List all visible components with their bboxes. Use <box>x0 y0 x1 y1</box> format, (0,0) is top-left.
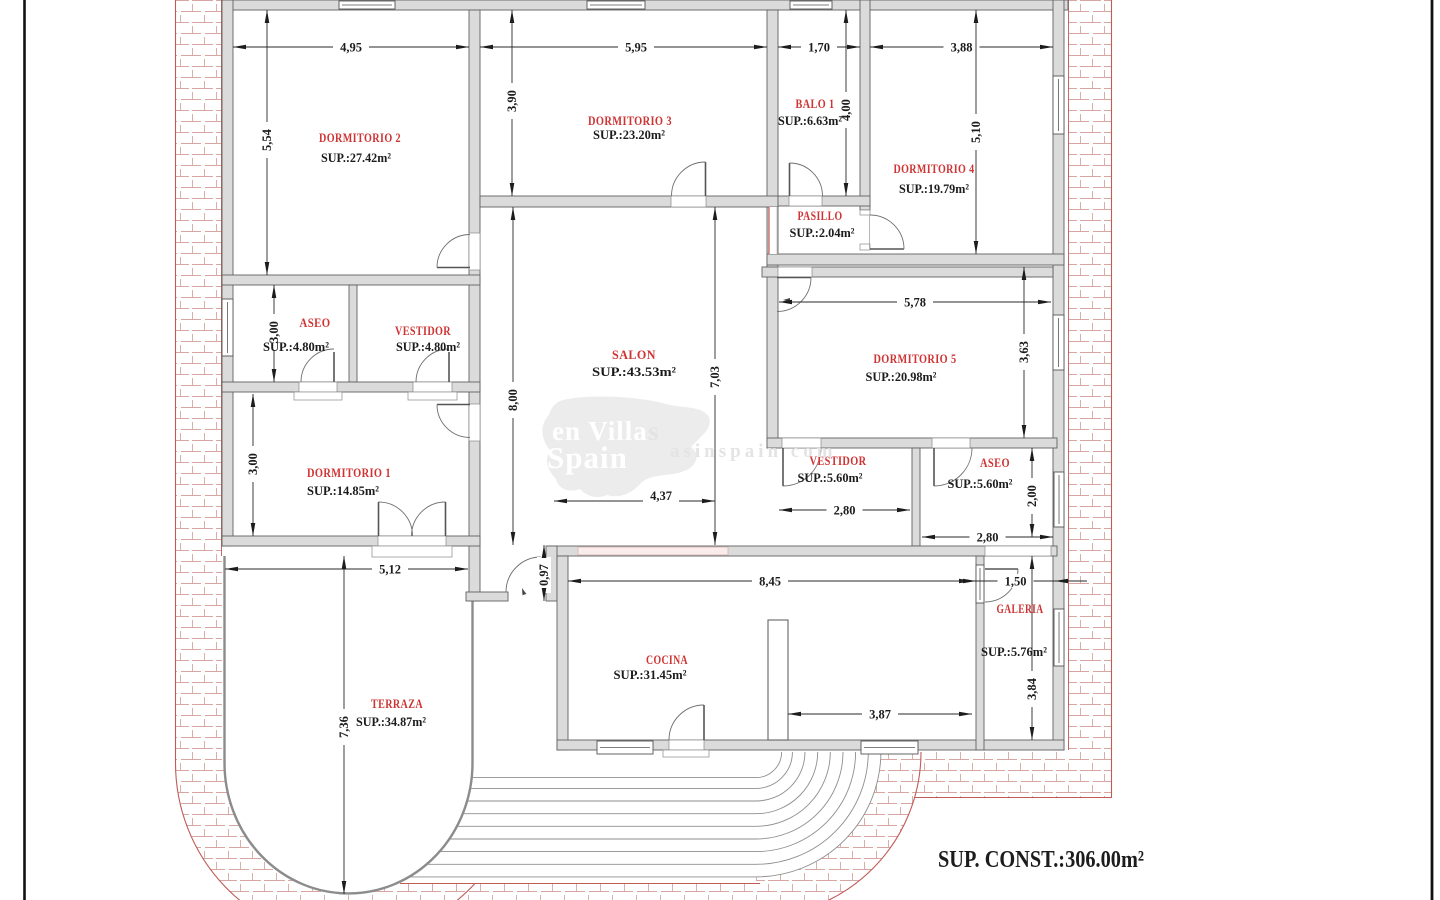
svg-text:SUP.:14.85m²: SUP.:14.85m² <box>307 483 379 498</box>
svg-text:7,03: 7,03 <box>708 366 722 388</box>
svg-text:3,87: 3,87 <box>869 708 891 722</box>
svg-text:COCINA: COCINA <box>646 652 688 667</box>
svg-text:s: s <box>648 416 659 446</box>
svg-text:SUP.:6.63m²: SUP.:6.63m² <box>778 113 842 128</box>
svg-text:3,88: 3,88 <box>951 41 973 55</box>
svg-text:5,78: 5,78 <box>904 296 926 310</box>
svg-text:DORMITORIO 4: DORMITORIO 4 <box>894 161 975 176</box>
svg-text:BALO 1: BALO 1 <box>796 96 835 111</box>
svg-text:5,54: 5,54 <box>260 128 274 151</box>
svg-text:7,36: 7,36 <box>337 716 351 738</box>
svg-text:3,90: 3,90 <box>505 90 519 112</box>
svg-text:SUP.:23.20m²: SUP.:23.20m² <box>593 127 665 142</box>
svg-text:5,12: 5,12 <box>379 563 401 577</box>
svg-text:SUP.:31.45m²: SUP.:31.45m² <box>614 667 687 682</box>
svg-text:8,00: 8,00 <box>506 389 520 411</box>
svg-text:2,80: 2,80 <box>977 531 999 545</box>
svg-text:SUP. CONST.:306.00m²: SUP. CONST.:306.00m² <box>938 847 1144 873</box>
svg-text:3,84: 3,84 <box>1025 677 1039 700</box>
svg-text:ASEO: ASEO <box>300 315 331 330</box>
svg-text:ASEO: ASEO <box>980 455 1010 470</box>
svg-text:DORMITORIO 1: DORMITORIO 1 <box>307 465 391 480</box>
svg-text:asinspain com: asinspain com <box>670 441 837 462</box>
svg-text:SUP.:27.42m²: SUP.:27.42m² <box>321 150 391 165</box>
svg-text:VESTIDOR: VESTIDOR <box>395 323 451 338</box>
svg-text:1,50: 1,50 <box>1005 575 1027 589</box>
svg-text:PASILLO: PASILLO <box>798 208 843 223</box>
svg-text:SUP.:20.98m²: SUP.:20.98m² <box>866 369 937 384</box>
svg-text:2,00: 2,00 <box>1025 485 1039 507</box>
svg-text:1,70: 1,70 <box>808 41 830 55</box>
svg-text:SUP.:43.53m²: SUP.:43.53m² <box>592 364 676 379</box>
svg-text:DORMITORIO 5: DORMITORIO 5 <box>874 351 957 366</box>
svg-text:Spain: Spain <box>547 440 628 475</box>
svg-text:8,45: 8,45 <box>759 575 781 589</box>
svg-text:SALON: SALON <box>612 347 656 362</box>
svg-text:SUP.:2.04m²: SUP.:2.04m² <box>790 225 855 240</box>
svg-text:SUP.:4.80m²: SUP.:4.80m² <box>396 339 460 354</box>
svg-text:3,63: 3,63 <box>1017 341 1031 363</box>
svg-text:SUP.:5.60m²: SUP.:5.60m² <box>948 476 1013 491</box>
svg-text:5,95: 5,95 <box>625 41 647 55</box>
svg-text:SUP.:5.60m²: SUP.:5.60m² <box>798 470 863 485</box>
svg-text:GALERIA: GALERIA <box>997 601 1044 616</box>
svg-text:SUP.:34.87m²: SUP.:34.87m² <box>356 714 426 729</box>
svg-text:SUP.:4.80m²: SUP.:4.80m² <box>263 339 329 354</box>
svg-text:SUP.:5.76m²: SUP.:5.76m² <box>981 644 1047 659</box>
svg-text:DORMITORIO 3: DORMITORIO 3 <box>588 113 672 128</box>
svg-text:5,10: 5,10 <box>969 121 983 143</box>
svg-text:DORMITORIO 2: DORMITORIO 2 <box>319 130 401 145</box>
svg-text:3,00: 3,00 <box>246 453 260 475</box>
svg-text:SUP.:19.79m²: SUP.:19.79m² <box>899 181 969 196</box>
svg-text:0,97: 0,97 <box>537 564 551 586</box>
svg-text:4,37: 4,37 <box>650 489 672 503</box>
svg-text:TERRAZA: TERRAZA <box>371 696 423 711</box>
svg-text:2,80: 2,80 <box>834 504 856 518</box>
svg-text:4,95: 4,95 <box>340 41 362 55</box>
